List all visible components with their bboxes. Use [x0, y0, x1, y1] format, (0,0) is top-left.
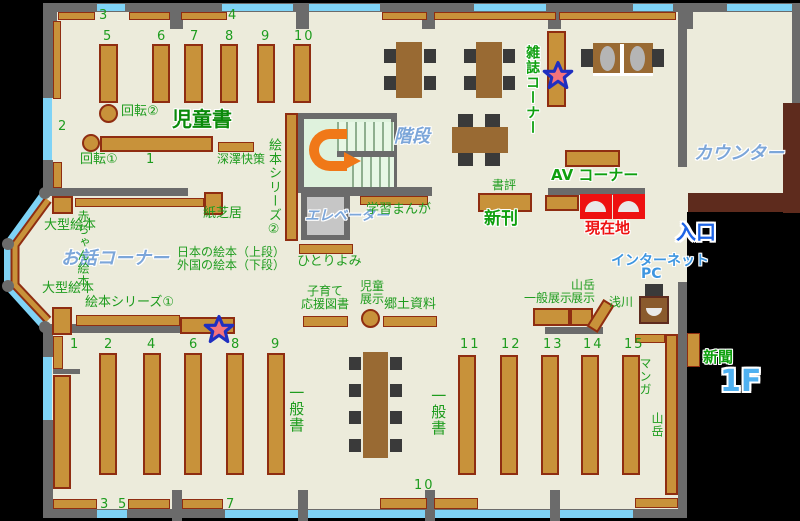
- wall-interior: [45, 188, 188, 196]
- chair: [464, 76, 476, 90]
- chair: [390, 411, 402, 424]
- chair: [390, 384, 402, 397]
- display-jido: [361, 309, 380, 328]
- shelf: [382, 12, 427, 20]
- chair: [349, 439, 361, 452]
- shelf-av: [565, 150, 620, 167]
- chair: [485, 114, 500, 127]
- shelf-kamishibai: [75, 198, 204, 207]
- star-marker-ehon: [204, 314, 234, 344]
- label-kosodate-2: 応援図書: [301, 298, 349, 311]
- label-shelf-number: 2: [104, 338, 112, 352]
- label-shelf-number: 1: [146, 153, 154, 167]
- label-shelf-number: 10: [414, 479, 435, 493]
- label-counter: カウンター: [694, 144, 784, 163]
- chair: [503, 76, 515, 90]
- shelf-kyodo: [383, 316, 437, 327]
- shelf-7: [184, 44, 203, 103]
- shelf: [434, 12, 556, 20]
- pillar: [550, 490, 560, 521]
- shelf-10: [293, 44, 311, 103]
- chair: [384, 49, 396, 63]
- label-shelf-number: 4: [147, 338, 155, 352]
- label-shelf-number: 8: [231, 338, 239, 352]
- label-sangaku-tenji-2: 展示: [571, 292, 595, 305]
- shelf-g4: [143, 353, 161, 475]
- sofa-edge: [593, 73, 653, 76]
- window: [43, 98, 52, 160]
- wall-right-top: [792, 3, 800, 103]
- label-kaidan: 階段: [394, 127, 430, 146]
- shelf-g14: [581, 355, 599, 475]
- label-kamishibai: 紙芝居: [203, 207, 242, 221]
- label-genzaichi: 現在地: [585, 220, 630, 236]
- label-shelf-number: 2: [58, 120, 66, 134]
- label-entrance: 入口: [676, 222, 716, 244]
- sofa-cushion: [600, 46, 615, 71]
- reading-table: [396, 42, 422, 98]
- label-floor-level: 1F: [720, 366, 761, 398]
- chair: [384, 76, 396, 90]
- shelf-ogata-ehon2: [52, 307, 72, 335]
- shelf: [58, 12, 95, 20]
- chair: [349, 384, 361, 397]
- shelf-g10: [380, 498, 427, 509]
- sofa-cushion: [630, 46, 645, 71]
- label-shelf-number: 3: [100, 498, 108, 512]
- chair: [390, 357, 402, 370]
- label-shelf-number: 8: [225, 30, 233, 44]
- label-ogata-ehon-bottom: 大型絵本: [42, 282, 94, 296]
- shelf: [559, 12, 676, 20]
- label-ippansho-right: 一般書: [430, 388, 446, 436]
- shelf-g2: [99, 353, 117, 475]
- label-shelf-number: 9: [261, 30, 269, 44]
- bay-window: [0, 185, 60, 335]
- window: [43, 357, 52, 420]
- rotating-rack-1: [82, 134, 100, 152]
- chair: [424, 49, 436, 63]
- shelf-g1: [53, 336, 63, 369]
- shelf: [545, 195, 579, 211]
- chair: [349, 411, 361, 424]
- shelf-g6: [184, 353, 202, 475]
- pc-monitor: [645, 284, 663, 296]
- label-ippansho-left: 一般書: [288, 385, 304, 433]
- shelf-1: [100, 136, 213, 152]
- shelf-g11: [458, 355, 476, 475]
- shelf: [53, 375, 71, 489]
- label-shelf-number: 11: [460, 338, 481, 352]
- shelf-6: [152, 44, 170, 103]
- label-shelf-number: 4: [228, 9, 236, 23]
- study-table: [363, 352, 388, 458]
- shelf-hitoriyomi: [299, 244, 353, 254]
- shelf: [129, 12, 170, 20]
- shelf-9: [257, 44, 275, 103]
- shelf-5: [99, 44, 118, 103]
- wall-left: [43, 420, 53, 510]
- window: [560, 510, 633, 518]
- window: [225, 510, 298, 518]
- sofa-armrest: [652, 49, 664, 67]
- sofa-armrest: [581, 49, 593, 67]
- label-kyodo-shiryo: 郷土資料: [384, 298, 436, 312]
- label-sangaku: 山岳: [650, 412, 663, 438]
- library-floor-map: 3 4 5 6 7 8 9 10 2 1 回転② 回転① 児童書 深澤快策 絵本…: [0, 0, 800, 521]
- shelf-g12: [500, 355, 518, 475]
- label-fukazawa: 深澤快策: [217, 153, 265, 166]
- label-shelf-number: 6: [189, 338, 197, 352]
- label-shelf-number: 13: [543, 338, 564, 352]
- label-shelf-number: 7: [190, 30, 198, 44]
- shelf-sangaku: [665, 334, 678, 495]
- label-shelf-number: 10: [294, 30, 315, 44]
- shelf-g8: [226, 353, 244, 475]
- chair: [424, 76, 436, 90]
- shelf-g7: [182, 499, 223, 509]
- label-jido-tenji-2: 展示: [360, 293, 384, 306]
- label-ippan-tenji: 一般展示: [524, 292, 572, 305]
- label-shelf-number: 9: [271, 338, 279, 352]
- pillar: [296, 3, 309, 29]
- label-zasshi-corner: 雑誌コーナー: [524, 45, 539, 135]
- shelf: [181, 12, 227, 20]
- reading-table: [452, 127, 508, 153]
- sofa-divider: [620, 44, 624, 73]
- star-marker-magazine: [543, 60, 573, 90]
- label-ehon-series2: 絵本シリーズ②: [266, 138, 280, 238]
- label-akachan-ehon: 赤ちゃん絵本: [76, 210, 89, 288]
- stairs-up-arrowhead: [344, 152, 361, 170]
- label-gaikoku-ehon: 外国の絵本（下段）: [177, 259, 285, 272]
- label-shelf-number: 6: [157, 30, 165, 44]
- label-shelf-number: 5: [103, 30, 111, 44]
- label-av-corner: AV コーナー: [551, 167, 638, 183]
- shelf-g10b: [434, 498, 478, 509]
- window: [474, 4, 546, 11]
- wall-left: [43, 3, 53, 98]
- chair: [349, 357, 361, 370]
- label-manga: マンガ: [638, 357, 651, 396]
- pillar: [298, 490, 308, 521]
- label-gakushu-manga: 学習まんが: [366, 203, 431, 217]
- chair: [458, 153, 473, 166]
- counter-desk: [688, 193, 800, 212]
- label-shelf-number: 7: [226, 498, 234, 512]
- stairs-up-arrow: [309, 129, 347, 171]
- window: [727, 4, 793, 11]
- shelf-fukazawa: [218, 142, 254, 152]
- chair: [464, 49, 476, 63]
- label-jidosho: 児童書: [172, 109, 232, 131]
- reading-table: [476, 42, 502, 98]
- label-kosodate-1: 子育て: [307, 285, 343, 298]
- shelf: [53, 21, 61, 99]
- wall-right-upper: [678, 7, 687, 167]
- shelf-shinbun: [687, 333, 700, 367]
- window: [308, 510, 425, 518]
- window: [306, 4, 380, 11]
- shelf: [53, 162, 62, 188]
- chair: [503, 49, 515, 63]
- pillar: [172, 490, 182, 521]
- label-sangaku-tenji-1: 山岳: [571, 279, 595, 292]
- label-nihon-ehon: 日本の絵本（上段）: [177, 246, 285, 259]
- shelf-g5: [128, 499, 170, 509]
- wall-right-lower: [678, 282, 687, 518]
- chair: [390, 439, 402, 452]
- label-shelf-number: 5: [118, 498, 126, 512]
- shelf-8: [220, 44, 238, 103]
- label-ehon-series1: 絵本シリーズ①: [85, 296, 174, 310]
- shelf: [635, 498, 678, 508]
- shelf-g13: [541, 355, 559, 475]
- shelf-ehon-series2: [285, 113, 298, 241]
- label-shelf-number: 15: [624, 338, 645, 352]
- label-asakawa: 浅川: [609, 296, 633, 309]
- wall-interior: [53, 369, 80, 374]
- window: [433, 510, 550, 518]
- shelf-ehon-series1: [76, 315, 180, 326]
- label-kaiten1: 回転①: [80, 153, 118, 167]
- shelf-ippan-tenji: [533, 308, 570, 326]
- label-kaiten2: 回転②: [121, 105, 159, 119]
- window: [633, 4, 673, 11]
- shelf-g9: [267, 353, 285, 475]
- chair: [485, 153, 500, 166]
- rotating-rack-2: [99, 104, 118, 123]
- chair: [458, 114, 473, 127]
- label-shelf-number: 3: [99, 9, 107, 23]
- label-shelf-number: 14: [583, 338, 604, 352]
- label-shelf-number: 1: [70, 338, 78, 352]
- label-pc: PC: [641, 267, 662, 282]
- label-jido-tenji-1: 児童: [360, 280, 384, 293]
- label-shelf-number: 12: [501, 338, 522, 352]
- shelf-kosodate: [303, 316, 348, 327]
- label-shohyo: 書評: [492, 179, 516, 192]
- label-shinbun: 新聞: [703, 349, 733, 365]
- shelf-g3: [53, 499, 97, 509]
- label-shinkan: 新刊: [484, 210, 518, 228]
- shelf-ogata-ehon: [52, 196, 73, 214]
- label-hitoriyomi: ひとりよみ: [297, 255, 362, 269]
